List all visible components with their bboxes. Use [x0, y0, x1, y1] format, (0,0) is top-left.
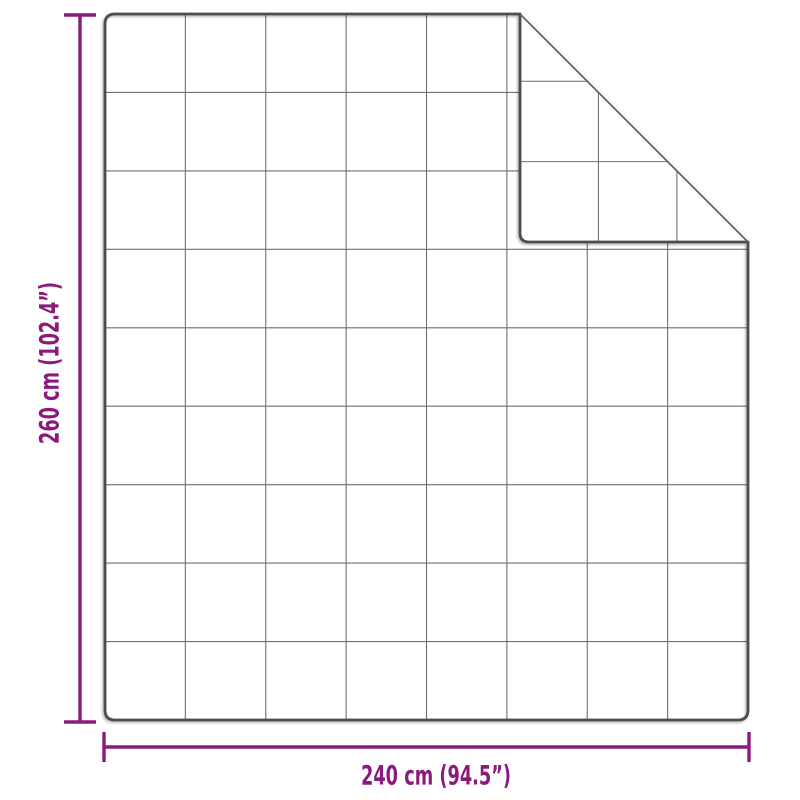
horizontal-dimension-label: 240 cm (94.5”)	[361, 761, 511, 792]
horizontal-dimension: 240 cm (94.5”)	[104, 732, 749, 792]
blanket-dimension-diagram: 260 cm (102.4”) 240 cm (94.5”)	[0, 0, 800, 800]
vertical-dimension-label: 260 cm (102.4”)	[35, 282, 66, 444]
diagram-canvas: 260 cm (102.4”) 240 cm (94.5”)	[0, 0, 800, 800]
vertical-dimension: 260 cm (102.4”)	[35, 15, 97, 722]
